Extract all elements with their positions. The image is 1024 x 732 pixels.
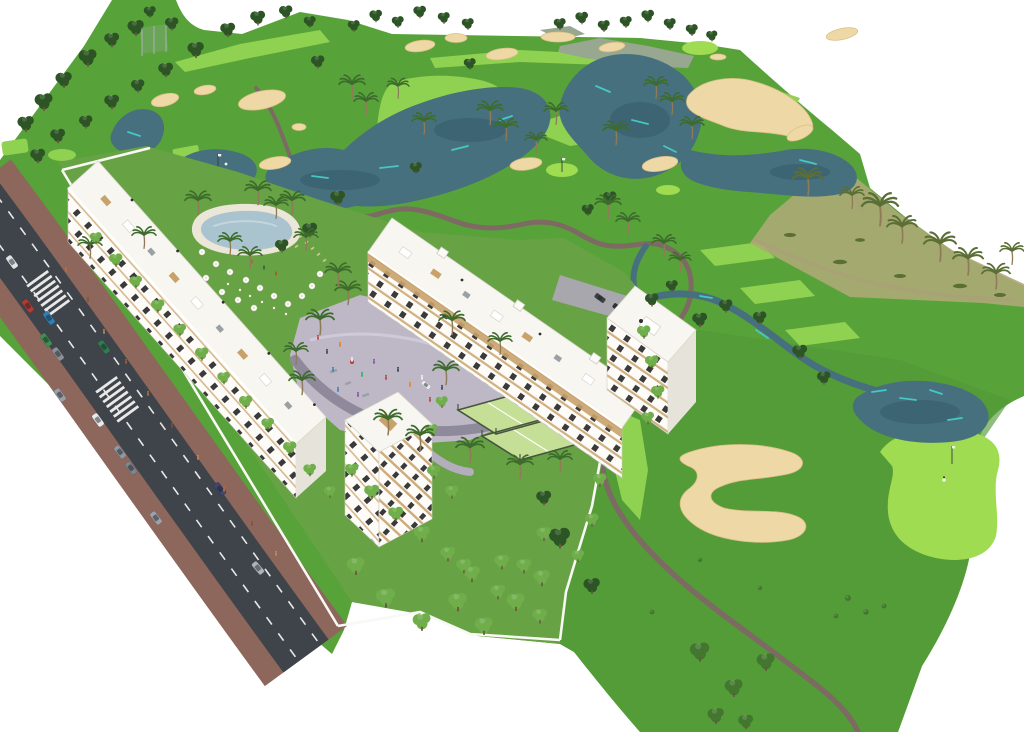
aerial-render-canvas <box>0 0 1024 732</box>
render-scene <box>0 0 1024 732</box>
